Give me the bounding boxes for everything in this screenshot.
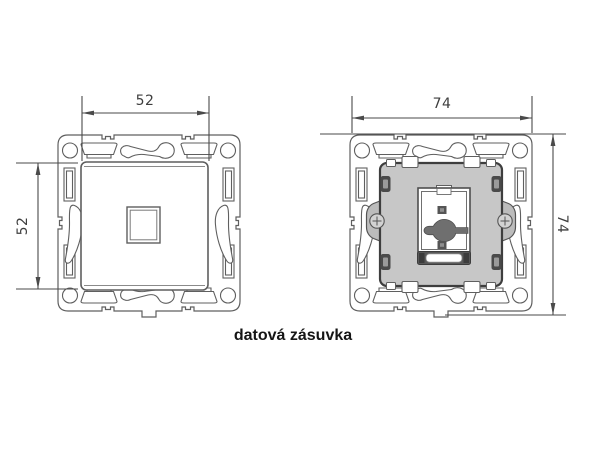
technical-drawing-page: 52 52 74 74 datová zásuvka	[0, 0, 600, 450]
dimension-label-front-height: 52	[15, 217, 31, 236]
drawing-caption: datová zásuvka	[234, 327, 352, 345]
mechanism-view-drawing	[350, 135, 532, 317]
module-latch	[418, 252, 471, 265]
dimension-label-mechanism-width: 74	[433, 96, 452, 112]
front-view-drawing	[58, 135, 240, 317]
dimension-label-front-width: 52	[136, 93, 155, 109]
socket-window-outer	[127, 207, 160, 243]
keystone-module	[418, 186, 471, 265]
dimension-drawing	[0, 0, 600, 450]
fixing-screw-right	[498, 214, 512, 228]
module-pin-square	[438, 241, 447, 249]
module-pin-square	[438, 206, 447, 214]
cover-plate	[81, 162, 208, 290]
dimension-label-mechanism-height: 74	[554, 215, 570, 234]
fixing-screw-left	[370, 214, 384, 228]
module-top-notch	[437, 189, 451, 195]
socket-mechanism	[367, 157, 516, 293]
